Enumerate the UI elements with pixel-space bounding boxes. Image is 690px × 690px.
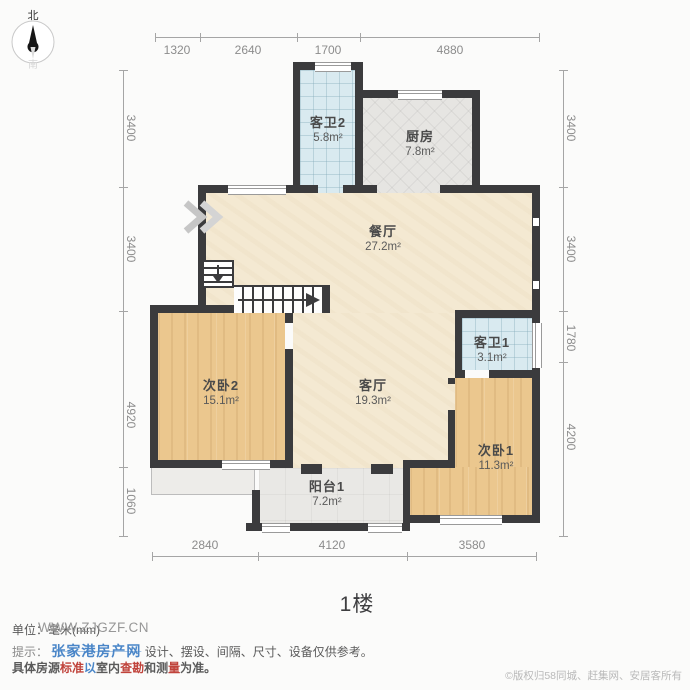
tick [559, 70, 568, 71]
dim-left-1: 3400 [124, 115, 138, 142]
dim-top-2: 2640 [235, 43, 262, 57]
terrace-floor [151, 468, 255, 495]
footer-line3-segment: 和 [144, 661, 156, 675]
wall [448, 378, 455, 384]
entrance-chevron-icon [182, 199, 226, 235]
wall [489, 370, 540, 378]
wall [403, 460, 410, 523]
wall [300, 185, 318, 193]
wall [343, 185, 355, 193]
tick [152, 552, 153, 561]
wall [371, 464, 393, 474]
room-label-guest-bath-1: 客卫1 3.1m² [474, 332, 510, 364]
window [262, 523, 290, 533]
compass-south-label: 南 [28, 56, 38, 71]
dim-left-2: 3400 [124, 236, 138, 263]
room-label-kitchen: 厨房 7.8m² [405, 126, 434, 158]
room-label-dining: 餐厅 27.2m² [365, 221, 401, 253]
footer-line3: 具体房源标准以室内查勘和测量为准。 [12, 659, 216, 676]
window [398, 90, 442, 100]
wall [301, 464, 322, 474]
dim-left-3: 4920 [124, 402, 138, 429]
tip-prefix: 提示： [12, 645, 48, 659]
footer-line3-segment: 量 [168, 661, 180, 675]
footer-line3-segment: 室内 [96, 661, 120, 675]
dim-bottom-3: 3580 [459, 538, 486, 552]
wall [448, 410, 455, 467]
tick [559, 362, 568, 363]
stairs-landing [202, 260, 234, 288]
tick [119, 311, 128, 312]
tick [155, 33, 156, 42]
wall [363, 185, 377, 193]
tick [360, 33, 361, 42]
wall [285, 349, 293, 468]
dim-right-4: 4200 [564, 424, 578, 451]
room-label-bedroom-2: 次卧2 15.1m² [203, 375, 239, 407]
window [228, 185, 286, 195]
room-label-living: 客厅 19.3m² [355, 375, 391, 407]
bedroom-1-floor [410, 467, 532, 515]
compass: 北 南 [10, 4, 56, 68]
tip-text: 设计、摆设、间隔、尺寸、设备仅供参考。 [145, 645, 373, 659]
wall [150, 305, 158, 468]
tick [407, 552, 408, 561]
dimension-line-bottom [152, 556, 537, 557]
watermark-site: 张家港房产网 [51, 643, 141, 659]
tick [297, 33, 298, 42]
tick [258, 552, 259, 561]
dim-top-1: 1320 [164, 43, 191, 57]
dim-right-3: 1780 [564, 325, 578, 352]
tick [119, 467, 128, 468]
dim-bottom-1: 2840 [192, 538, 219, 552]
footer-line3-segment: 标准 [60, 661, 84, 675]
tick [536, 552, 537, 561]
footer-line3-segment: 测 [156, 661, 168, 675]
stairs-run [234, 285, 324, 313]
window [222, 460, 270, 470]
room-label-balcony-1: 阳台1 7.2m² [309, 476, 345, 508]
window [532, 323, 542, 368]
tick [119, 187, 128, 188]
window [315, 62, 351, 72]
floor-title: 1楼 [340, 588, 375, 618]
tick [119, 70, 128, 71]
footer-line3-segment: 以 [84, 661, 96, 675]
dim-right-2: 3400 [564, 236, 578, 263]
room-label-bedroom-1: 次卧1 11.3m² [478, 440, 514, 472]
room-label-guest-bath-2: 客卫2 5.8m² [310, 112, 346, 144]
wall [440, 185, 472, 193]
footer-line3-segment: 具体房源 [12, 661, 60, 675]
dim-left-4: 1060 [124, 488, 138, 515]
floor-plan: 北 南 [0, 0, 690, 690]
wall-notch [533, 281, 539, 289]
dim-right-1: 3400 [564, 115, 578, 142]
watermark-url: WWW.ZJGZF.CN [38, 620, 149, 635]
tick [200, 33, 201, 42]
wall [285, 313, 293, 323]
tick [559, 536, 568, 537]
wall [455, 370, 465, 378]
stairs-direction-arrow-icon [234, 287, 324, 313]
wall [403, 460, 455, 468]
wall [293, 62, 300, 193]
window [440, 515, 502, 525]
wall [252, 490, 260, 531]
wall [472, 90, 480, 193]
tick [539, 33, 540, 42]
wall [480, 185, 540, 193]
wall [455, 310, 462, 378]
tick [119, 536, 128, 537]
wall [455, 310, 540, 318]
wall-notch [533, 218, 539, 226]
footer-line3-segment: 为准。 [180, 661, 216, 675]
stairs-down-arrow-icon [204, 262, 232, 286]
copyright-text: ©版权归58同城、赶集网、安居客所有 [505, 668, 682, 683]
footer-line3-segment: 查勘 [120, 661, 144, 675]
dim-top-4: 4880 [437, 43, 464, 57]
footer-tip-line: 提示： 张家港房产网 设计、摆设、间隔、尺寸、设备仅供参考。 [12, 641, 373, 661]
dimension-line-top [155, 37, 540, 38]
dim-bottom-2: 4120 [319, 538, 346, 552]
dim-top-3: 1700 [315, 43, 342, 57]
tick [559, 187, 568, 188]
window [368, 523, 402, 533]
tick [559, 311, 568, 312]
wall [323, 285, 330, 313]
wall [355, 62, 363, 193]
